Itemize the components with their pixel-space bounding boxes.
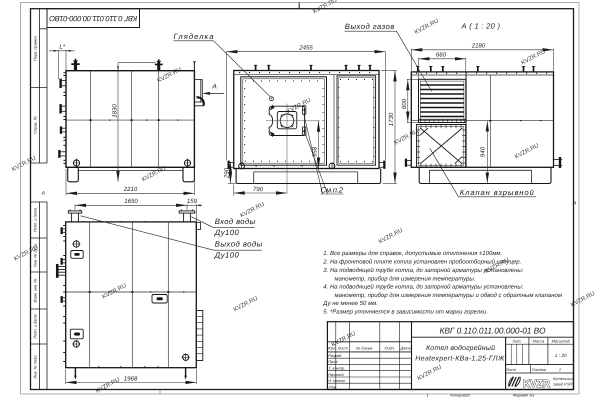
svg-text:Котельный: Котельный bbox=[553, 376, 575, 381]
svg-text:Дата: Дата bbox=[399, 346, 411, 351]
svg-text:KVZR: KVZR bbox=[523, 379, 551, 390]
svg-text:Т. контр.: Т. контр. bbox=[328, 366, 345, 371]
svg-text:290: 290 bbox=[223, 167, 230, 179]
svg-text:2210: 2210 bbox=[123, 186, 138, 193]
svg-text:Масса: Масса bbox=[533, 338, 545, 343]
svg-text:159: 159 bbox=[187, 198, 198, 205]
svg-text:КВГ 0.110.011.00.000-01ВО: КВГ 0.110.011.00.000-01ВО bbox=[49, 14, 137, 23]
svg-text:Heatexpert-КВа-1,25-ГЛЖ: Heatexpert-КВа-1,25-ГЛЖ bbox=[415, 355, 505, 362]
svg-text:Формат А3: Формат А3 bbox=[513, 393, 535, 398]
svg-text:См.п.2: См.п.2 bbox=[321, 185, 344, 194]
svg-text:3. На подводящей трубе котла,: 3. На подводящей трубе котла, до запорно… bbox=[323, 267, 523, 274]
svg-text:Вход воды: Вход воды bbox=[215, 217, 256, 226]
svg-text:А: А bbox=[211, 84, 217, 91]
svg-text:660: 660 bbox=[436, 52, 447, 59]
svg-text:940: 940 bbox=[479, 146, 486, 157]
svg-text:Подп.: Подп. bbox=[385, 346, 395, 351]
svg-text:Выход газов: Выход газов bbox=[345, 22, 395, 31]
svg-text:790: 790 bbox=[253, 186, 264, 193]
svg-text:Справ. №: Справ. № bbox=[33, 115, 38, 133]
svg-text:Изм.: Изм. bbox=[327, 346, 335, 351]
svg-text:1968: 1968 bbox=[124, 375, 138, 382]
svg-text:1830: 1830 bbox=[111, 104, 118, 118]
svg-text:600: 600 bbox=[401, 98, 408, 109]
svg-text:Подп. и дата: Подп. и дата bbox=[33, 207, 38, 232]
svg-text:манометр, прибор для измерения: манометр, прибор для измерения температу… bbox=[335, 292, 562, 299]
svg-text:Перв. примен.: Перв. примен. bbox=[33, 35, 38, 61]
svg-text:1 : 20: 1 : 20 bbox=[555, 353, 567, 359]
svg-text:Лит.: Лит. bbox=[511, 338, 521, 343]
svg-text:Выход воды: Выход воды bbox=[215, 239, 263, 248]
svg-text:завод РЭП: завод РЭП bbox=[552, 382, 573, 387]
svg-text:2455: 2455 bbox=[298, 44, 313, 51]
svg-text:Нач.отд.: Нач.отд. bbox=[328, 372, 344, 377]
svg-text:Ду100: Ду100 bbox=[214, 228, 240, 237]
svg-text:Разраб.: Разраб. bbox=[328, 353, 342, 358]
svg-text:5. *Размер уточняется в зависи: 5. *Размер уточняется в зависимости от м… bbox=[323, 308, 488, 315]
svg-text:Взам. инв. №: Взам. инв. № bbox=[33, 278, 38, 303]
svg-text:Листов: Листов bbox=[531, 367, 546, 372]
svg-text:L*: L* bbox=[59, 44, 65, 51]
svg-text:Гляделка: Гляделка bbox=[174, 32, 215, 41]
svg-text:Утв.: Утв. bbox=[328, 384, 337, 389]
svg-text:2. На фронтовой плите котла ус: 2. На фронтовой плите котла установлен п… bbox=[322, 259, 521, 266]
svg-text:Ду100: Ду100 bbox=[214, 251, 240, 260]
svg-text:4. На подводящей трубе котла,: 4. На подводящей трубе котла, до запорно… bbox=[323, 284, 523, 291]
svg-text:Котел водогрейный: Котел водогрейный bbox=[426, 344, 495, 352]
svg-text:Н. контр.: Н. контр. bbox=[328, 378, 346, 383]
svg-text:А ( 1 : 20 ): А ( 1 : 20 ) bbox=[461, 21, 501, 30]
svg-text:манометр, прибор для измерения: манометр, прибор для измерения температу… bbox=[335, 275, 476, 282]
svg-text:1. Все размеры для справок, до: 1. Все размеры для справок, допустимые о… bbox=[323, 250, 502, 257]
svg-text:Копировал: Копировал bbox=[450, 393, 470, 398]
svg-text:1650: 1650 bbox=[124, 198, 138, 205]
svg-text:Инв. № дубл.: Инв. № дубл. bbox=[33, 243, 38, 267]
svg-text:КВГ 0.110.011.00.000-01 ВО: КВГ 0.110.011.00.000-01 ВО bbox=[440, 326, 546, 336]
svg-text:Пров.: Пров. bbox=[328, 359, 338, 364]
svg-text:Инв. № подл.: Инв. № подл. bbox=[33, 354, 38, 378]
svg-text:А: А bbox=[41, 191, 46, 197]
svg-text:1730: 1730 bbox=[388, 112, 395, 126]
svg-text:Лист: Лист bbox=[337, 346, 349, 351]
svg-text:Ду не менее 50 мм.: Ду не менее 50 мм. bbox=[322, 300, 378, 307]
svg-text:1: 1 bbox=[426, 393, 428, 398]
svg-text:2180: 2180 bbox=[471, 43, 486, 50]
svg-text:А: А bbox=[572, 201, 577, 207]
svg-text:Подп. и дата: Подп. и дата bbox=[33, 313, 38, 338]
svg-text:Клапан взрывной: Клапан взрывной bbox=[460, 188, 535, 197]
svg-text:Лист: Лист bbox=[505, 367, 517, 372]
svg-text:1: 1 bbox=[559, 367, 561, 372]
svg-text:Масштаб: Масштаб bbox=[552, 338, 571, 343]
svg-text:№ докум.: № докум. bbox=[356, 346, 373, 351]
